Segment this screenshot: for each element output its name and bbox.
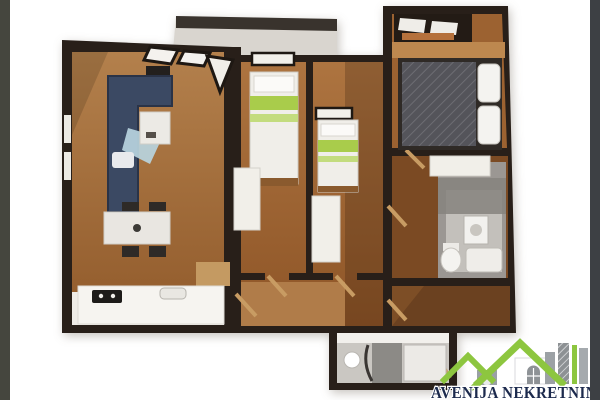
watermark-text: AVENIJA NEKRETNIN: [431, 383, 597, 400]
dining-chair-2: [149, 202, 166, 211]
bathroom-wardrobe: [430, 156, 490, 176]
headboard-wall: [392, 42, 505, 58]
bathtub: [466, 248, 502, 272]
bedroom2-window: [316, 108, 352, 119]
master-bedroom: [398, 58, 502, 150]
table-vase: [133, 224, 141, 232]
table-decor: [146, 132, 156, 138]
left-border-strip: [0, 0, 10, 400]
building-green: [572, 345, 577, 384]
shower-partition: [372, 343, 402, 383]
toilet: [441, 248, 461, 272]
living-window-2: [178, 51, 210, 66]
double-bed-duvet: [402, 62, 476, 146]
bed1-stripe: [250, 96, 298, 110]
shower-room-counter: [337, 333, 449, 343]
bed1-stripe-light: [250, 114, 298, 122]
bed2-stripe-light: [318, 156, 358, 162]
bed2-pillow: [321, 124, 355, 136]
cooktop-burner-2: [111, 294, 115, 298]
left-wall-window-2: [64, 152, 71, 180]
bed2-frame: [318, 186, 358, 192]
apartment-floor-plan: [62, 6, 516, 390]
radiator: [402, 33, 454, 40]
master-window-pane-2: [430, 21, 458, 35]
sofa-pillow: [112, 152, 134, 168]
master-pillow-2: [478, 106, 500, 144]
floor-plan-svg: AVENIJA NEKRETNIN: [0, 0, 600, 400]
sink-bowl: [344, 352, 360, 368]
master-pillow-1: [478, 64, 500, 102]
left-wall-window-1: [64, 115, 71, 143]
cooktop-burner-1: [99, 294, 103, 298]
shower-glass: [438, 178, 506, 214]
hallway-floor: [241, 282, 345, 326]
dining-chair-4: [149, 246, 166, 257]
sofa-tray: [146, 66, 170, 75]
bed1-pillow: [254, 76, 294, 92]
side-desk: [196, 262, 230, 286]
floor-shading: [345, 62, 383, 326]
coffee-table: [140, 112, 170, 144]
building-3: [579, 348, 588, 384]
right-border-strip: [590, 0, 600, 400]
living-window-1: [144, 47, 178, 64]
bedroom1-window: [252, 53, 294, 65]
bed2-stripe: [318, 140, 358, 152]
washer-door: [470, 224, 482, 236]
wardrobe-1: [234, 168, 260, 230]
dining-chair-1: [122, 202, 139, 211]
real-estate-render: AVENIJA NEKRETNIN: [0, 0, 600, 400]
kitchen-sink: [160, 288, 186, 299]
cooktop: [92, 290, 122, 303]
wardrobe-2: [312, 196, 340, 262]
shower-tray: [404, 345, 446, 381]
dining-chair-3: [122, 246, 139, 257]
